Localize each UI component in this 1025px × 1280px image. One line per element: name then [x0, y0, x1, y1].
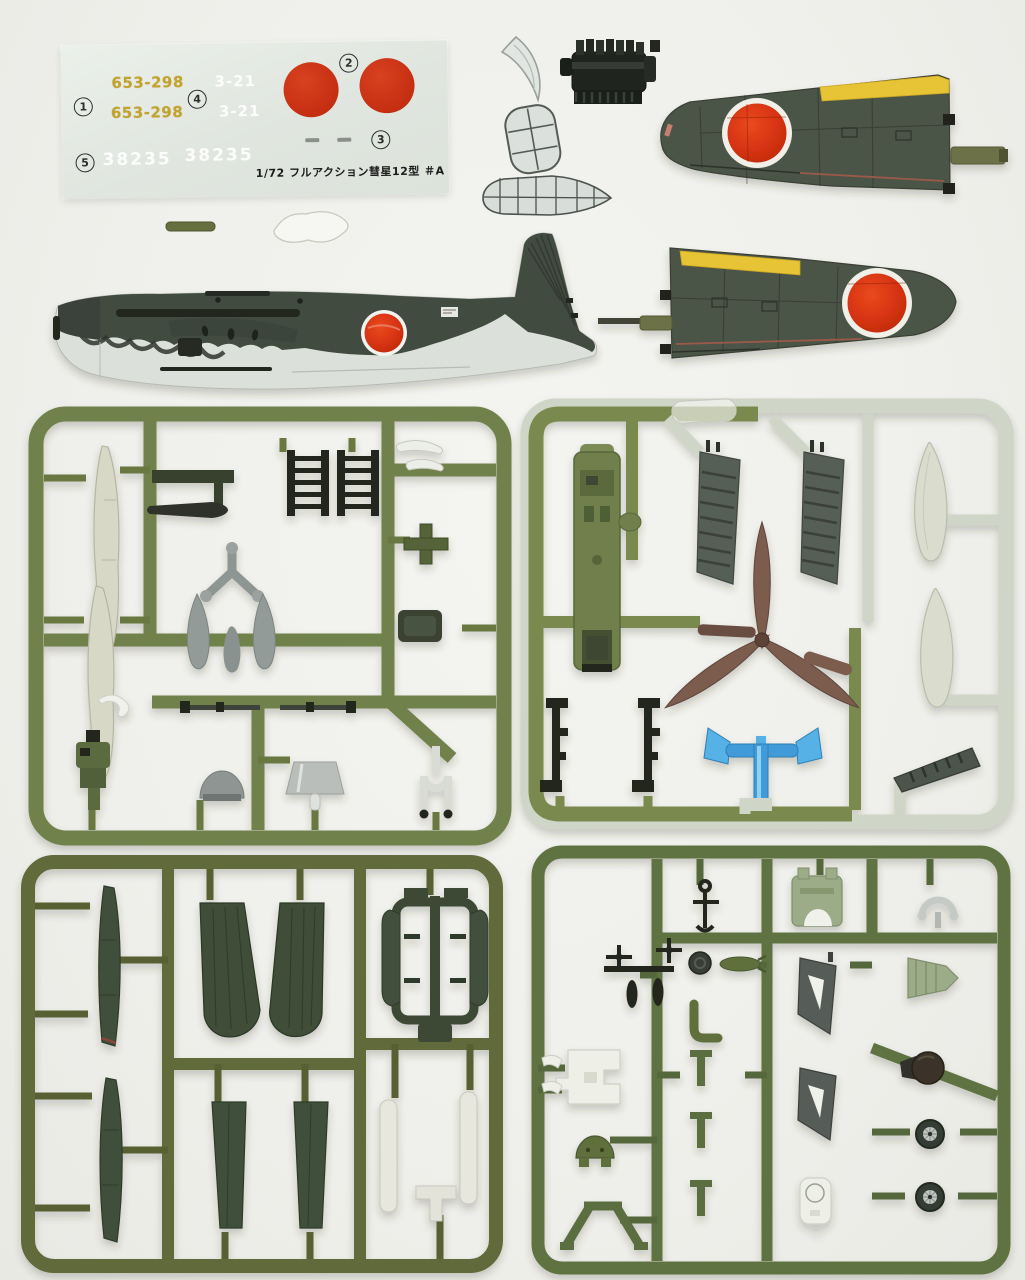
decal-marker-2: 2	[339, 54, 358, 73]
teardrop-spat-1	[187, 594, 209, 669]
decal-sheet: 1 653-298 653-298 4 3-21 3-21 2 3 5 3823…	[61, 40, 449, 198]
decal-dash-1	[305, 138, 319, 142]
anchor-winch-part	[693, 881, 719, 931]
float-tank-1	[915, 443, 947, 562]
sprue-a	[36, 414, 504, 838]
wheel-1	[916, 1120, 944, 1148]
blue-stand-clamp	[704, 728, 822, 811]
gear-leg-2	[632, 698, 660, 792]
canopy-long-part	[483, 176, 611, 215]
wing-strip-1	[99, 886, 120, 1046]
decal-tail-number-1: 38235	[102, 149, 171, 170]
exhaust-comb-2	[337, 450, 379, 516]
decal-hinomaru-2	[359, 58, 415, 114]
wing-spar-stub	[951, 147, 1005, 164]
port-wing-panel	[661, 75, 1008, 194]
decal-marker-5: 5	[75, 153, 94, 172]
wing-hinomaru	[848, 274, 907, 333]
decal-serial-1: 653-298	[111, 73, 184, 92]
pilot-figure-part	[76, 730, 110, 810]
white-strip-1	[380, 1100, 397, 1212]
tail-cone-part	[908, 958, 958, 998]
tee-pegs	[690, 1050, 712, 1216]
ribbed-cover-1	[697, 440, 740, 584]
canopy-mid-part	[502, 102, 563, 176]
gear-leg-1	[540, 698, 568, 792]
clear-rod-part	[166, 222, 215, 231]
decal-code-2: 3-21	[219, 102, 261, 121]
wing-hinomaru	[728, 104, 787, 163]
white-strip-2	[460, 1092, 477, 1204]
decal-marker-1: 1	[74, 97, 93, 116]
starboard-wing-panel	[598, 248, 956, 358]
engine-mount-part	[792, 868, 842, 926]
silver-c-ring-part	[918, 900, 959, 928]
sprue-c	[28, 862, 496, 1266]
white-tee-part	[416, 1186, 456, 1221]
windscreen-crescent-part	[502, 37, 540, 100]
white-gear-door-part	[800, 1178, 831, 1231]
wing-strip-2	[100, 1078, 122, 1242]
decal-tail-number-2: 38235	[184, 145, 253, 166]
narrow-strip-1	[212, 1102, 246, 1228]
coil-disc-part	[689, 952, 711, 974]
white-hook-parts-d	[542, 1055, 562, 1094]
decal-marker-3: 3	[371, 130, 390, 149]
exhaust-comb-1	[287, 450, 329, 516]
green-dome-part	[576, 1136, 614, 1167]
sprue-d	[538, 852, 1004, 1268]
cross-bracket-part	[404, 524, 448, 564]
flap-wedge-part	[894, 748, 980, 792]
fuselage-half	[53, 233, 597, 389]
a-frame-part	[560, 1206, 648, 1250]
clear-scrap-on-runner	[671, 398, 736, 423]
prop-shaft-part	[697, 624, 755, 638]
bay-door-cluster	[382, 888, 488, 1042]
wing-spar-stub	[640, 316, 672, 330]
gear-y-strut	[200, 542, 264, 602]
fuselage-hinomaru	[365, 314, 404, 353]
flap-fan-2	[270, 903, 324, 1036]
small-bomb-part	[224, 626, 241, 672]
gear-bracket-1	[798, 952, 836, 1034]
clear-sprue-scrap	[274, 212, 348, 243]
gear-bracket-2	[798, 1068, 836, 1140]
elbow-tube-part	[694, 1004, 718, 1038]
sprue-b	[528, 398, 1006, 822]
flap-fan-1	[200, 903, 260, 1037]
spinner-dome-part	[200, 771, 244, 801]
engine-block-part	[560, 39, 660, 104]
decal-marker-4: 4	[188, 90, 207, 109]
torpedo-small-part	[720, 956, 766, 972]
decal-hinomaru-1	[283, 62, 339, 118]
model-kit-photo: 1 653-298 653-298 4 3-21 3-21 2 3 5 3823…	[0, 0, 1025, 1280]
drop-tank-part	[147, 502, 228, 518]
decal-code-1: 3-21	[214, 72, 256, 91]
decal-kit-label: 1/72 フルアクション彗星12型 ＃A	[256, 162, 445, 181]
decal-dash-2	[337, 138, 351, 142]
cone-lamp-part	[286, 762, 344, 810]
decal-serial-2: 653-298	[111, 103, 184, 122]
float-tank-2	[921, 589, 953, 708]
teardrop-spat-2	[253, 594, 275, 669]
seat-box-part	[398, 610, 442, 642]
narrow-strip-2	[294, 1102, 328, 1228]
wheel-2	[916, 1183, 944, 1211]
white-box-bracket-part	[556, 1050, 620, 1104]
ribbed-cover-2	[801, 440, 844, 584]
